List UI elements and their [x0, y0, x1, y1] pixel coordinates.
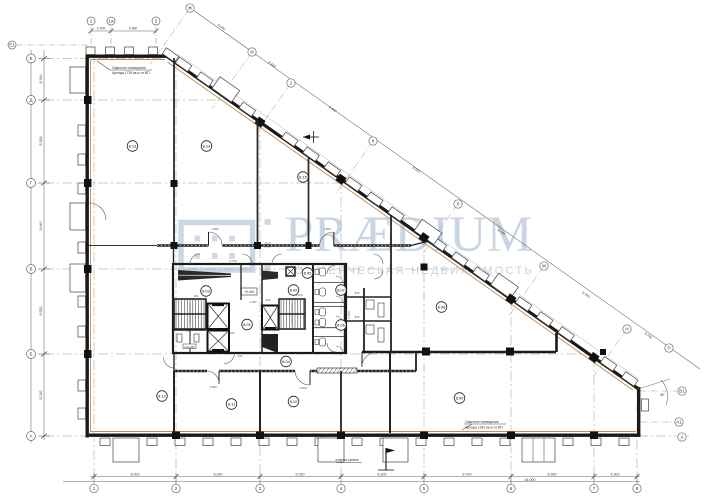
svg-text:1.500: 1.500 — [323, 227, 331, 231]
svg-text:600: 600 — [355, 315, 360, 319]
svg-text:8.11: 8.11 — [228, 402, 236, 407]
svg-text:2.420: 2.420 — [97, 27, 106, 31]
svg-text:А1: А1 — [676, 420, 682, 425]
svg-text:900: 900 — [266, 298, 271, 302]
svg-text:пом.350: пом.350 — [184, 345, 195, 349]
svg-text:8.08: 8.08 — [438, 305, 447, 310]
svg-text:PRÆDIUM: PRÆDIUM — [285, 207, 533, 263]
svg-text:8.13: 8.13 — [129, 144, 138, 149]
svg-text:750: 750 — [186, 329, 191, 333]
svg-text:Офисное помещение: Офисное помещение — [465, 420, 499, 424]
svg-text:Л: Л — [457, 202, 460, 207]
svg-text:8.05: 8.05 — [304, 271, 313, 276]
svg-text:Е: Е — [29, 56, 32, 61]
svg-text:3.180: 3.180 — [347, 311, 351, 319]
svg-text:Б: Б — [30, 352, 33, 357]
svg-text:8.640: 8.640 — [39, 222, 43, 231]
svg-text:45°: 45° — [660, 393, 666, 397]
svg-text:Аренда 1281 кв.м от ВП: Аренда 1281 кв.м от ВП — [465, 426, 503, 430]
svg-text:Е1: Е1 — [9, 43, 15, 48]
svg-text:1а: 1а — [108, 19, 114, 24]
svg-text:8.250: 8.250 — [296, 472, 305, 476]
svg-text:8.12: 8.12 — [158, 394, 167, 399]
svg-text:8.15: 8.15 — [299, 175, 308, 180]
svg-text:8.300: 8.300 — [548, 472, 557, 476]
svg-text:600: 600 — [355, 291, 360, 295]
svg-text:1.350: 1.350 — [250, 300, 257, 304]
svg-text:А: А — [29, 434, 32, 439]
svg-text:И: И — [250, 50, 253, 55]
svg-text:8.000: 8.000 — [131, 472, 140, 476]
svg-text:1.500: 1.500 — [209, 385, 217, 389]
svg-text:8.06: 8.06 — [337, 323, 346, 328]
svg-text:1.500: 1.500 — [299, 386, 307, 390]
svg-text:300: 300 — [194, 294, 199, 298]
svg-text:44.000: 44.000 — [525, 478, 536, 482]
svg-text:4.300: 4.300 — [611, 472, 620, 476]
svg-text:8.01: 8.01 — [243, 322, 252, 327]
svg-text:8.520: 8.520 — [39, 307, 43, 316]
svg-text:Д: Д — [29, 98, 32, 103]
svg-text:1.100: 1.100 — [228, 331, 235, 335]
svg-text:П: П — [667, 346, 670, 351]
svg-text:5.480: 5.480 — [129, 27, 138, 31]
svg-text:8.250: 8.250 — [214, 472, 223, 476]
svg-text:Н: Н — [625, 327, 628, 332]
svg-text:Б1: Б1 — [679, 389, 685, 394]
svg-text:Офисное помещение: Офисное помещение — [112, 66, 146, 70]
svg-text:2.700: 2.700 — [230, 259, 237, 263]
svg-text:1.500: 1.500 — [211, 227, 219, 231]
svg-text:8.07: 8.07 — [337, 288, 346, 293]
svg-text:К: К — [372, 139, 375, 144]
svg-text:Аренда 1735 кв.м от ВП: Аренда 1735 кв.м от ВП — [112, 71, 150, 75]
svg-text:8.10: 8.10 — [290, 399, 299, 404]
svg-text:8.04: 8.04 — [282, 359, 291, 364]
svg-text:+6.440: +6.440 — [244, 290, 255, 294]
svg-text:8.02: 8.02 — [290, 288, 299, 293]
svg-text:8.300: 8.300 — [39, 137, 43, 146]
svg-text:8.03: 8.03 — [202, 289, 211, 294]
svg-text:М: М — [542, 264, 546, 269]
svg-text:8.340: 8.340 — [39, 75, 43, 84]
svg-text:А: А — [680, 435, 683, 440]
svg-text:8.300: 8.300 — [378, 472, 387, 476]
svg-text:8.09: 8.09 — [456, 396, 465, 401]
svg-text:150: 150 — [238, 354, 243, 358]
svg-text:В: В — [29, 267, 32, 272]
svg-text:8.700: 8.700 — [463, 472, 472, 476]
svg-text:отметка уровня: отметка уровня — [336, 458, 359, 462]
svg-text:8.14: 8.14 — [203, 144, 212, 149]
svg-text:8.210: 8.210 — [39, 391, 43, 400]
